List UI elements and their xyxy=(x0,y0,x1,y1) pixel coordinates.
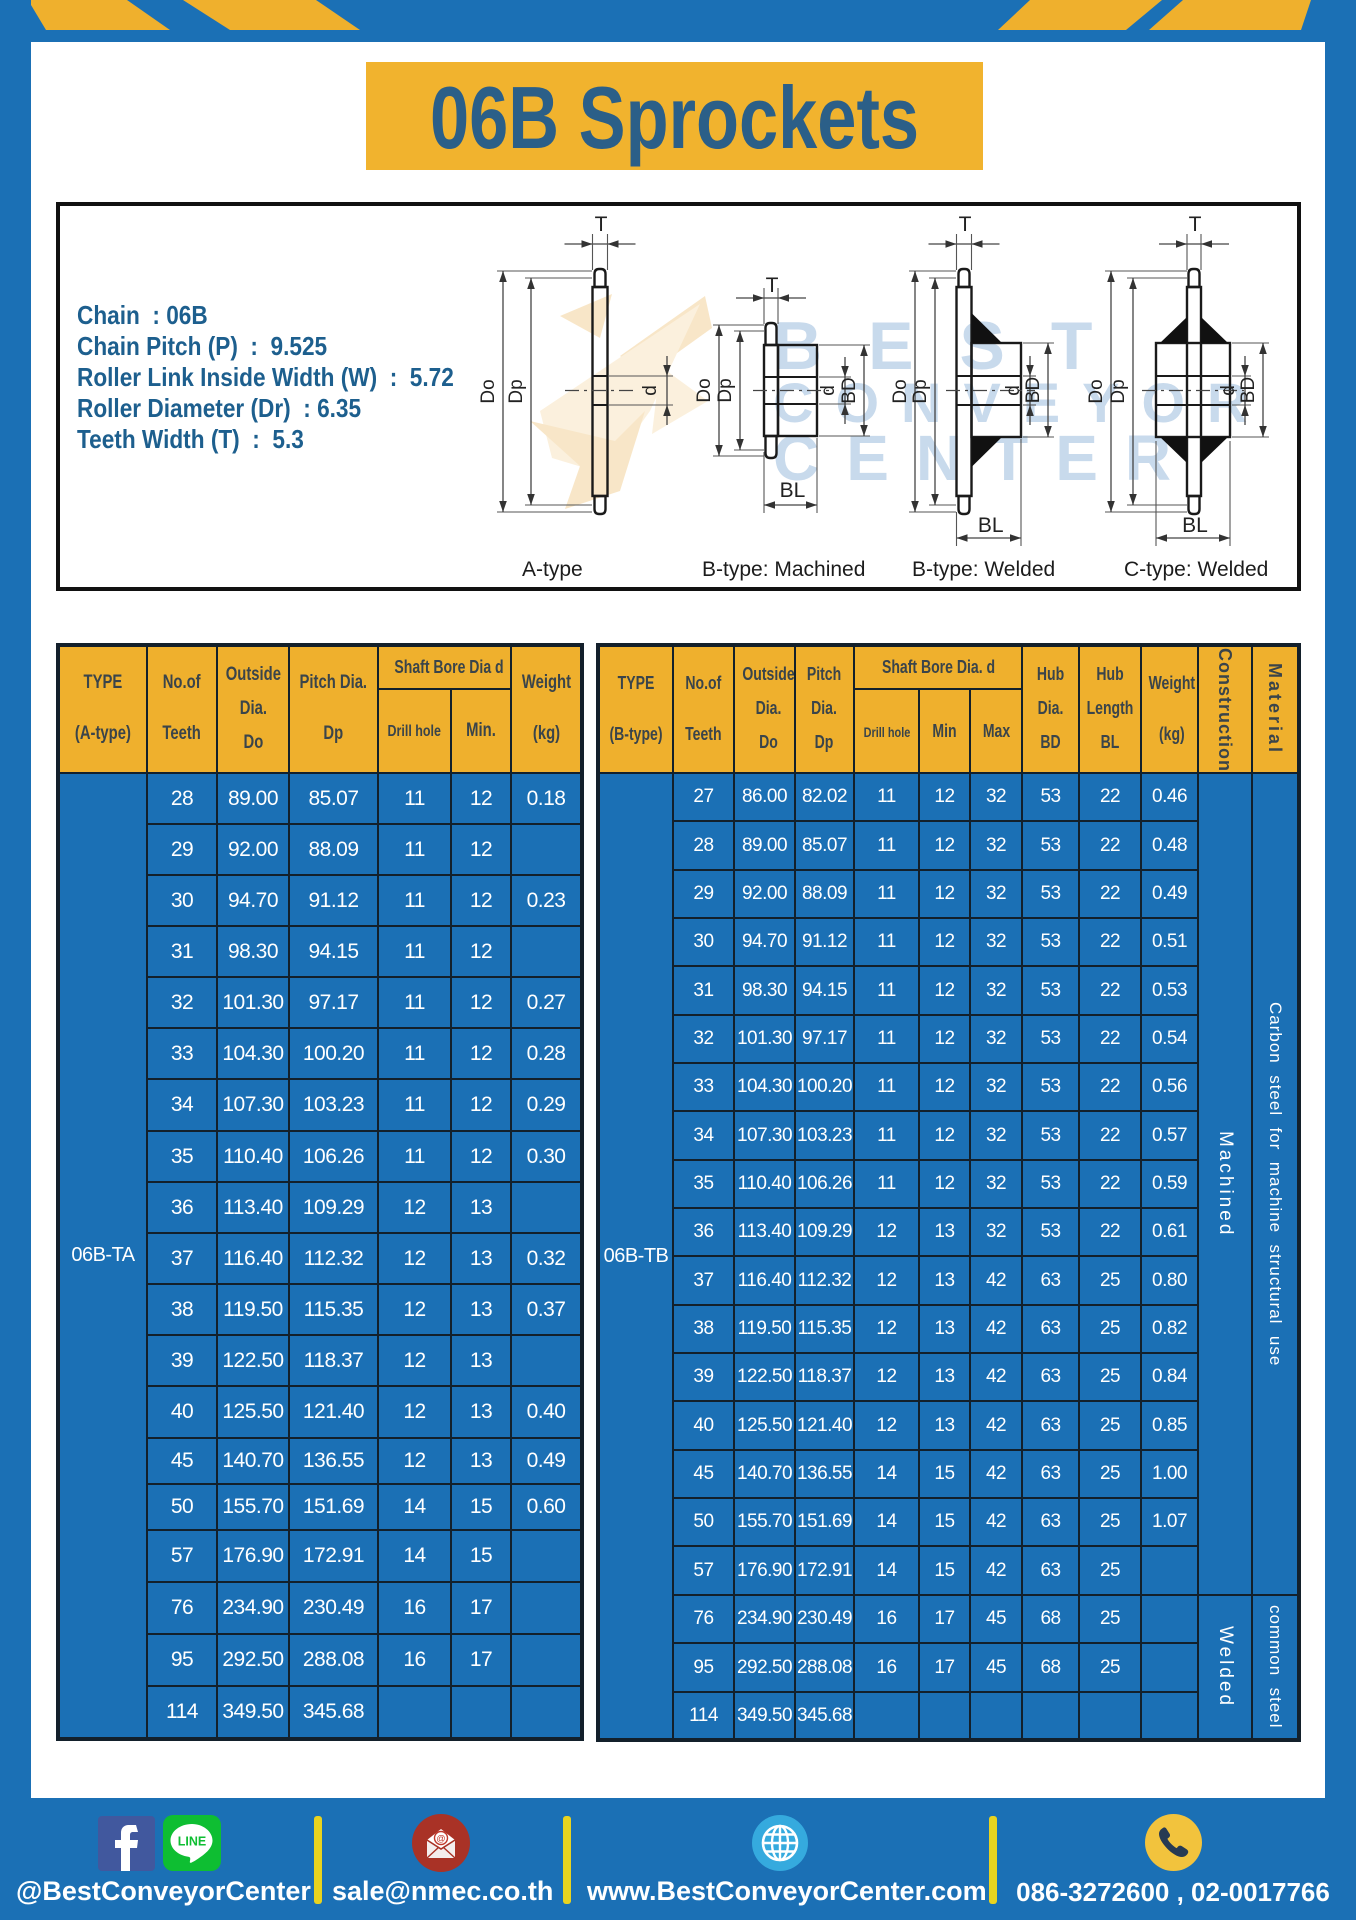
svg-text:d: d xyxy=(818,385,839,396)
svg-text:T: T xyxy=(959,213,972,236)
svg-text:Do: Do xyxy=(890,379,911,403)
svg-text:T: T xyxy=(595,213,608,236)
svg-text:A-type: A-type xyxy=(522,558,583,581)
svg-text:d: d xyxy=(1218,385,1239,396)
svg-text:BD: BD xyxy=(1238,377,1259,403)
svg-text:BD: BD xyxy=(1023,377,1044,403)
svg-text:BL: BL xyxy=(978,514,1004,537)
svg-text:@: @ xyxy=(436,1834,445,1844)
svg-text:CENTER: CENTER xyxy=(773,422,1198,494)
svg-text:Dp: Dp xyxy=(1108,379,1129,403)
svg-text:LINE: LINE xyxy=(178,1835,206,1849)
svg-text:T: T xyxy=(1189,213,1202,236)
svg-text:Dp: Dp xyxy=(910,379,931,403)
svg-text:T: T xyxy=(766,274,779,297)
svg-text:C-type: Welded: C-type: Welded xyxy=(1124,558,1268,581)
svg-text:d: d xyxy=(1003,385,1024,396)
svg-text:BL: BL xyxy=(780,479,806,502)
svg-text:d: d xyxy=(640,385,661,396)
svg-text:Dp: Dp xyxy=(715,378,736,402)
svg-text:Do: Do xyxy=(1086,379,1107,403)
svg-text:Dp: Dp xyxy=(506,379,527,403)
svg-text:B-type: Welded: B-type: Welded xyxy=(912,558,1055,581)
svg-text:B-type: Machined: B-type: Machined xyxy=(702,558,865,581)
svg-text:Do: Do xyxy=(694,378,715,402)
svg-text:Do: Do xyxy=(478,379,499,403)
svg-text:BL: BL xyxy=(1182,514,1208,537)
svg-text:BD: BD xyxy=(839,377,860,403)
